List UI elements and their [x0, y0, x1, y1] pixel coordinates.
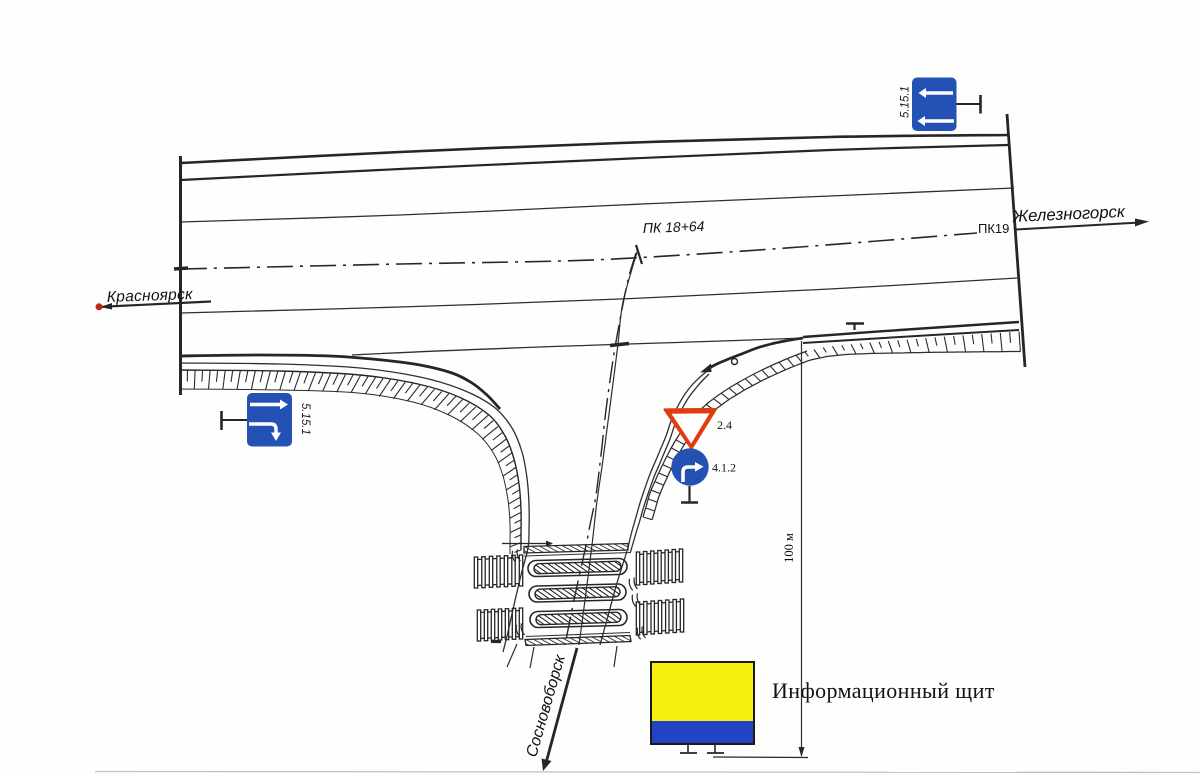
svg-text:4.1.2: 4.1.2	[712, 461, 736, 475]
svg-text:5.15.1: 5.15.1	[299, 403, 311, 435]
svg-text:ПК19: ПК19	[978, 221, 1009, 236]
svg-text:2.4: 2.4	[717, 418, 732, 432]
svg-text:Железногорск: Железногорск	[1011, 202, 1126, 226]
svg-text:ПК 18+64: ПК 18+64	[643, 218, 705, 236]
svg-text:Информационный щит: Информационный щит	[772, 678, 995, 703]
svg-text:100 м: 100 м	[782, 533, 796, 563]
svg-text:5.15.1: 5.15.1	[900, 86, 912, 118]
